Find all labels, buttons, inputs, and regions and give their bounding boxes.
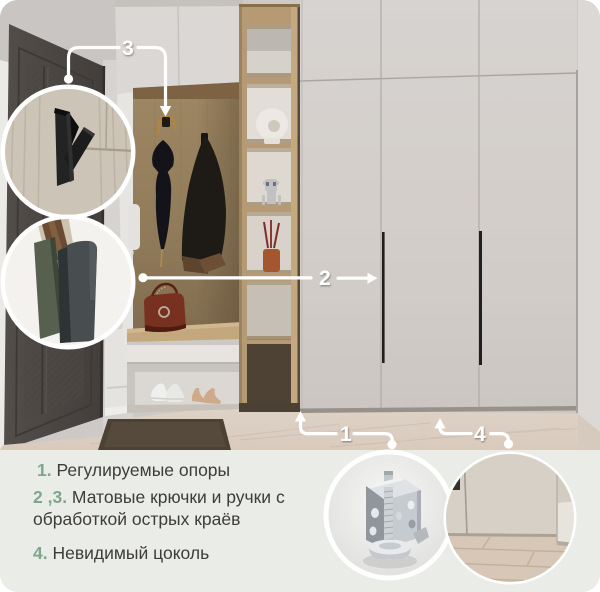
svg-text:1: 1 [340, 423, 352, 446]
svg-text:2: 2 [319, 267, 331, 290]
svg-text:3: 3 [122, 37, 134, 60]
svg-text:4: 4 [474, 423, 486, 446]
